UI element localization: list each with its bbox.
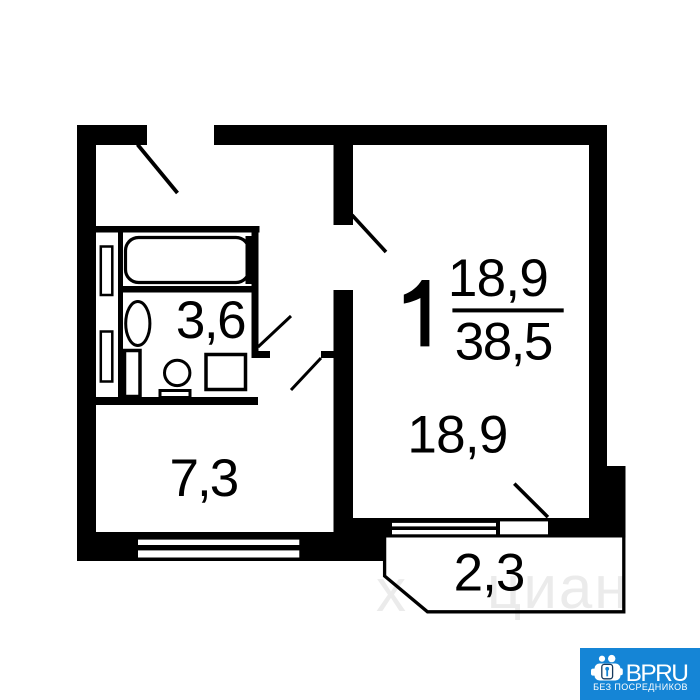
svg-text:7,3: 7,3 (170, 449, 238, 508)
svg-text:3,6: 3,6 (176, 291, 245, 350)
svg-text:18,9: 18,9 (407, 406, 507, 465)
svg-text:БЕЗ ПОСРЕДНИКОВ: БЕЗ ПОСРЕДНИКОВ (593, 682, 688, 692)
svg-text:38,5: 38,5 (455, 313, 552, 372)
svg-text:2,3: 2,3 (454, 544, 525, 603)
svg-text:18,9: 18,9 (448, 249, 548, 308)
